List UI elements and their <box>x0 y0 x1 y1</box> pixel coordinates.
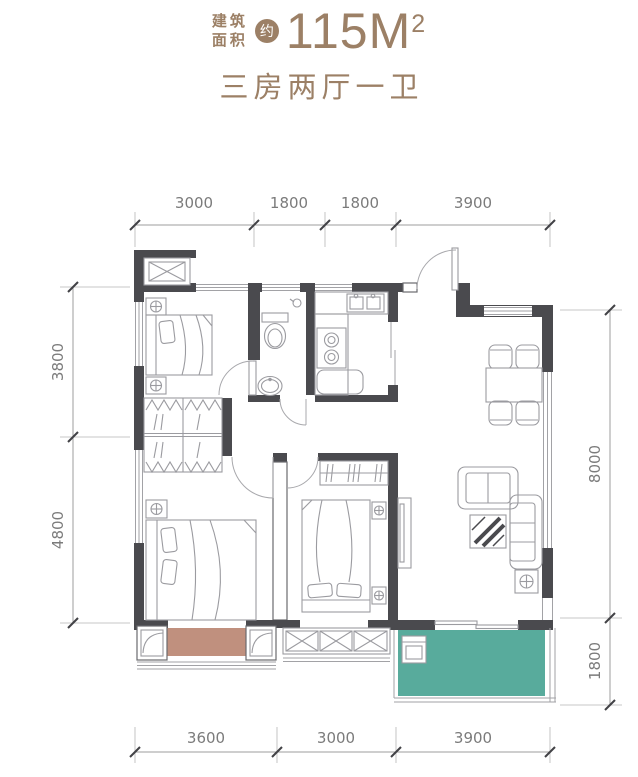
bedroom3-door <box>287 457 318 488</box>
bedroom1-door <box>219 361 256 395</box>
floorplan-page: 建筑 面积 约 115M2 三房两厅一卫 3000 1800 1800 3900 <box>0 0 638 777</box>
dim-label: 1800 <box>341 194 379 212</box>
dining-chair <box>489 401 512 425</box>
kitchen <box>315 292 388 395</box>
living-room <box>398 467 542 593</box>
corner-flue <box>137 626 167 660</box>
bedroom-1 <box>146 298 212 394</box>
bedroom-2 <box>146 500 256 620</box>
area-label-line2: 面积 <box>212 31 248 51</box>
dimension-right: 8000 1800 <box>560 305 622 710</box>
dining-chair <box>489 345 512 369</box>
dimension-top: 3000 1800 1800 3900 <box>130 194 555 247</box>
bay-window-middle <box>283 628 390 662</box>
toilet <box>262 313 288 349</box>
floor-plan-drawing: 3000 1800 1800 3900 3600 3000 3900 <box>0 0 638 777</box>
wardrobe <box>320 461 388 485</box>
dining-table <box>486 368 542 402</box>
wardrobe-block <box>144 398 222 472</box>
dim-label: 4800 <box>49 511 67 549</box>
dining-area <box>486 345 542 425</box>
sofa-two-seat <box>458 467 518 509</box>
double-bed <box>146 315 212 375</box>
entry-door <box>417 248 458 290</box>
area-label-line1: 建筑 <box>212 12 248 32</box>
sofa-three-seat <box>510 495 542 569</box>
nightstand <box>372 587 386 604</box>
balcony-sliding-door <box>435 621 518 629</box>
area-label: 建筑 面积 <box>212 12 248 51</box>
balcony <box>394 628 556 702</box>
top-wall-windows <box>196 285 352 291</box>
dim-label: 3900 <box>454 729 492 747</box>
tv-cabinet <box>398 498 411 568</box>
dim-label: 3900 <box>454 194 492 212</box>
nightstand <box>146 500 167 518</box>
double-bed <box>302 500 370 612</box>
ac-unit <box>144 258 190 285</box>
dimension-bottom: 3600 3000 3900 <box>130 727 555 763</box>
kitchen-counter-top <box>315 292 388 314</box>
area-line: 建筑 面积 约 115M2 <box>0 6 638 56</box>
nightstand <box>146 377 166 394</box>
kitchen-counter-side <box>315 314 348 395</box>
dim-label: 1800 <box>586 642 604 680</box>
wash-basin <box>258 377 282 396</box>
side-table <box>515 570 538 593</box>
dim-label: 3600 <box>187 729 225 747</box>
plan-header: 建筑 面积 约 115M2 三房两厅一卫 <box>0 6 638 106</box>
bay-window-fill <box>167 628 246 656</box>
bay-window-left <box>137 626 276 669</box>
bedroom-3 <box>302 461 388 612</box>
area-value: 115M2 <box>286 6 426 56</box>
rug <box>470 515 506 548</box>
approx-badge: 约 <box>255 19 279 43</box>
area-superscript: 2 <box>411 10 426 38</box>
bedroom2-door <box>232 457 273 498</box>
fridge <box>317 370 363 394</box>
plan-subtitle: 三房两厅一卫 <box>0 64 638 106</box>
bathroom-door <box>280 399 306 425</box>
kitchen-sink <box>347 294 384 312</box>
kitchen-sliding-door <box>391 322 395 385</box>
dim-label: 3000 <box>317 729 355 747</box>
nightstand <box>372 502 386 519</box>
dim-label: 1800 <box>270 194 308 212</box>
dim-label: 3000 <box>175 194 213 212</box>
corner-flue <box>246 626 276 660</box>
dining-chair <box>516 401 539 425</box>
washing-machine <box>402 636 426 663</box>
nightstand <box>146 298 166 315</box>
stove <box>317 328 346 368</box>
dining-chair <box>516 345 539 369</box>
dim-label: 8000 <box>586 445 604 483</box>
dim-label: 3800 <box>49 343 67 381</box>
double-bed <box>146 520 256 620</box>
dimension-left: 3800 4800 <box>49 282 130 628</box>
floor-drain <box>290 299 301 307</box>
bathroom <box>258 299 301 396</box>
